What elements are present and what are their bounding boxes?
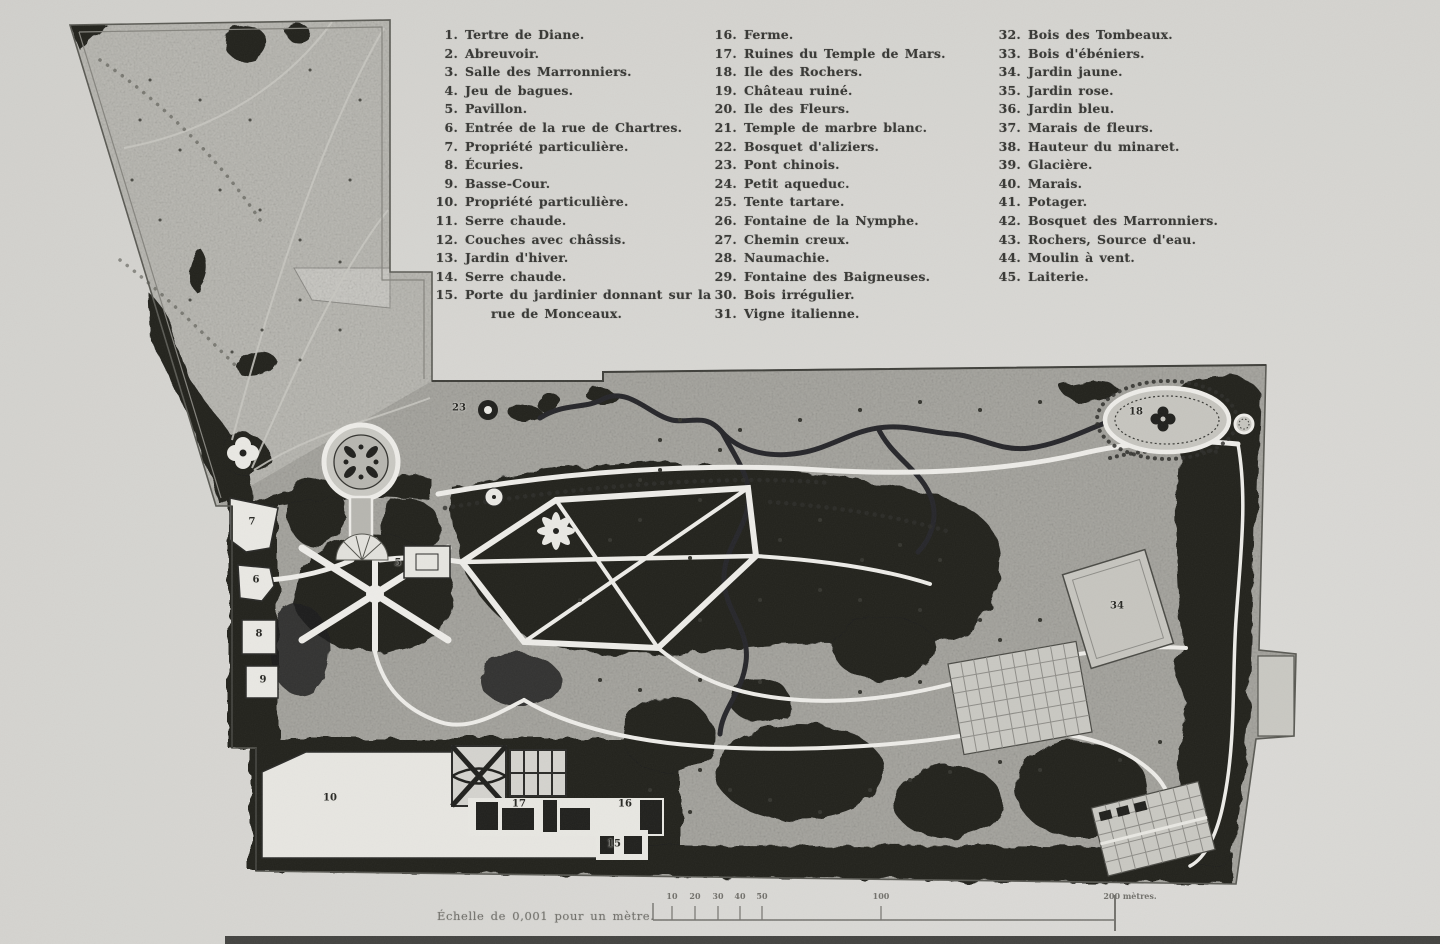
legend-item-label: Moulin à vent.: [1028, 249, 1135, 268]
legend-item: 26. Fontaine de la Nymphe.: [711, 212, 983, 231]
legend-item-label: Pavillon.: [465, 100, 527, 119]
scale-tick-label: 50: [756, 891, 767, 901]
map-number-label: 7: [249, 517, 256, 528]
legend-item: 43. Rochers, Source d'eau.: [995, 231, 1255, 250]
legend-item: 37. Marais de fleurs.: [995, 119, 1255, 138]
legend-item-label: Ferme.: [744, 26, 793, 45]
legend-item-number: 17.: [711, 45, 737, 64]
legend-item: 13. Jardin d'hiver.: [432, 249, 712, 268]
legend-item-number: 35.: [995, 82, 1021, 101]
legend-item-label: Vigne italienne.: [744, 305, 860, 324]
legend-item: 7. Propriété particulière.: [432, 138, 712, 157]
map-number-label: 17: [512, 799, 526, 810]
legend-item-number: 5.: [432, 100, 458, 119]
map-number-label: 34: [1110, 601, 1124, 612]
legend-item-label: Bosquet des Marronniers.: [1028, 212, 1218, 231]
legend-item: 29. Fontaine des Baigneuses.: [711, 268, 983, 287]
legend-item-label: Couches avec châssis.: [465, 231, 626, 250]
legend-item-number: 28.: [711, 249, 737, 268]
legend-item-number: 22.: [711, 138, 737, 157]
legend-item-number: 10.: [432, 193, 458, 212]
legend-item-label: Temple de marbre blanc.: [744, 119, 927, 138]
legend-item: 27. Chemin creux.: [711, 231, 983, 250]
legend-item-label: Bosquet d'aliziers.: [744, 138, 879, 157]
legend-item-label: Basse-Cour.: [465, 175, 550, 194]
legend-item: 4. Jeu de bagues.: [432, 82, 712, 101]
legend-item: 12. Couches avec châssis.: [432, 231, 712, 250]
legend-item-label: Marais de fleurs.: [1028, 119, 1153, 138]
legend-item-label: Propriété particulière.: [465, 193, 629, 212]
legend-item: 25. Tente tartare.: [711, 193, 983, 212]
legend-item-number: 38.: [995, 138, 1021, 157]
legend-item-label: Naumachie.: [744, 249, 830, 268]
legend-item: 22. Bosquet d'aliziers.: [711, 138, 983, 157]
legend-item-number: 12.: [432, 231, 458, 250]
legend-item-label: Chemin creux.: [744, 231, 850, 250]
legend-item-label: Hauteur du minaret.: [1028, 138, 1180, 157]
map-number-label: 8: [256, 629, 263, 640]
legend-item: 34. Jardin jaune.: [995, 63, 1255, 82]
map-number-label: 10: [323, 793, 337, 804]
legend-item-number: 16.: [711, 26, 737, 45]
legend-item-number: 15.: [432, 286, 458, 305]
map-number-label: 18: [1129, 407, 1143, 418]
legend-item: 8. Écuries.: [432, 156, 712, 175]
map-number-label: 16: [618, 799, 632, 810]
legend-item-number: 32.: [995, 26, 1021, 45]
legend-item: 38. Hauteur du minaret.: [995, 138, 1255, 157]
legend-item-number: 9.: [432, 175, 458, 194]
legend-item: 20. Ile des Fleurs.: [711, 100, 983, 119]
legend-item: 30. Bois irrégulier.: [711, 286, 983, 305]
legend-item-label: Ile des Rochers.: [744, 63, 863, 82]
legend-item-number: 45.: [995, 268, 1021, 287]
legend-item: 24. Petit aqueduc.: [711, 175, 983, 194]
legend-item-label: Serre chaude.: [465, 268, 567, 287]
legend-item-number: 14.: [432, 268, 458, 287]
legend-item-number: 3.: [432, 63, 458, 82]
legend-item: 36. Jardin bleu.: [995, 100, 1255, 119]
scale-tick-label: 20: [689, 891, 700, 901]
legend-item: 19. Château ruiné.: [711, 82, 983, 101]
legend-item-label: Propriété particulière.: [465, 138, 629, 157]
legend-item: 14. Serre chaude.: [432, 268, 712, 287]
legend-item-number: 25.: [711, 193, 737, 212]
scanned-page: 1. Tertre de Diane. 2. Abreuvoir. 3. Sal…: [0, 0, 1440, 944]
legend-item-number: 11.: [432, 212, 458, 231]
legend-item-number: 23.: [711, 156, 737, 175]
legend-item-label: Petit aqueduc.: [744, 175, 850, 194]
legend-item-label: Bois d'ébéniers.: [1028, 45, 1145, 64]
legend-item: 23. Pont chinois.: [711, 156, 983, 175]
legend-item: 42. Bosquet des Marronniers.: [995, 212, 1255, 231]
legend-column-3: 32. Bois des Tombeaux. 33. Bois d'ébénie…: [995, 26, 1255, 286]
legend-item: 10. Propriété particulière.: [432, 193, 712, 212]
legend-item-label: Laiterie.: [1028, 268, 1089, 287]
legend-item: 6. Entrée de la rue de Chartres.: [432, 119, 712, 138]
legend-item-number: 13.: [432, 249, 458, 268]
legend-item-number: 43.: [995, 231, 1021, 250]
legend-item: 1. Tertre de Diane.: [432, 26, 712, 45]
legend-item-number: 37.: [995, 119, 1021, 138]
legend-item-label: Ile des Fleurs.: [744, 100, 850, 119]
legend-item-number: 4.: [432, 82, 458, 101]
legend-item-label: Entrée de la rue de Chartres.: [465, 119, 682, 138]
legend-item: 39. Glacière.: [995, 156, 1255, 175]
legend-item-number: 21.: [711, 119, 737, 138]
legend-item-number: 29.: [711, 268, 737, 287]
legend-item-number: 7.: [432, 138, 458, 157]
legend-item: 32. Bois des Tombeaux.: [995, 26, 1255, 45]
legend-item-label: Serre chaude.: [465, 212, 567, 231]
legend-item: 21. Temple de marbre blanc.: [711, 119, 983, 138]
legend-item-number: 41.: [995, 193, 1021, 212]
legend-item-label: Jardin jaune.: [1028, 63, 1123, 82]
legend-item-label: Jardin bleu.: [1028, 100, 1114, 119]
legend-item-label: Pont chinois.: [744, 156, 840, 175]
legend-item-number: 39.: [995, 156, 1021, 175]
legend-item: 28. Naumachie.: [711, 249, 983, 268]
legend-item-label: Porte du jardinier donnant sur la rue de…: [465, 286, 712, 323]
legend-item-number: 33.: [995, 45, 1021, 64]
legend-item-label: Tertre de Diane.: [465, 26, 584, 45]
legend-item-label: Tente tartare.: [744, 193, 845, 212]
legend-item-number: 34.: [995, 63, 1021, 82]
legend-item-number: 2.: [432, 45, 458, 64]
scale-tick-label: 200 mètres.: [1103, 891, 1156, 901]
legend-item-label: Jardin d'hiver.: [465, 249, 568, 268]
legend-item-label: Bois des Tombeaux.: [1028, 26, 1173, 45]
legend-item: 11. Serre chaude.: [432, 212, 712, 231]
legend-item-label: Ruines du Temple de Mars.: [744, 45, 946, 64]
legend-item-number: 31.: [711, 305, 737, 324]
scale-tick-label: 30: [712, 891, 723, 901]
legend-item-label: Marais.: [1028, 175, 1082, 194]
legend-item-label: Bois irrégulier.: [744, 286, 855, 305]
legend-item-label: Rochers, Source d'eau.: [1028, 231, 1196, 250]
legend-item-label: Potager.: [1028, 193, 1087, 212]
legend-item: 35. Jardin rose.: [995, 82, 1255, 101]
legend-item-label: Jeu de bagues.: [465, 82, 573, 101]
legend-item-number: 44.: [995, 249, 1021, 268]
legend-item: 17. Ruines du Temple de Mars.: [711, 45, 983, 64]
legend-item-label: Salle des Marronniers.: [465, 63, 632, 82]
legend-item-number: 40.: [995, 175, 1021, 194]
map-number-label: 15: [607, 839, 621, 850]
legend-item-number: 8.: [432, 156, 458, 175]
legend-item: 16. Ferme.: [711, 26, 983, 45]
legend-item: 9. Basse-Cour.: [432, 175, 712, 194]
legend-item: 33. Bois d'ébéniers.: [995, 45, 1255, 64]
legend-item: 5. Pavillon.: [432, 100, 712, 119]
legend-item-label: Fontaine des Baigneuses.: [744, 268, 930, 287]
legend-item-number: 36.: [995, 100, 1021, 119]
legend-item-number: 26.: [711, 212, 737, 231]
map-number-label: 6: [253, 575, 260, 586]
legend-item-number: 42.: [995, 212, 1021, 231]
legend-column-1: 1. Tertre de Diane. 2. Abreuvoir. 3. Sal…: [432, 26, 712, 324]
legend-item-number: 20.: [711, 100, 737, 119]
legend-item: 41. Potager.: [995, 193, 1255, 212]
legend-item-label: Glacière.: [1028, 156, 1093, 175]
legend-item: 40. Marais.: [995, 175, 1255, 194]
scale-tick-label: 100: [873, 891, 890, 901]
legend-item-number: 18.: [711, 63, 737, 82]
legend-item-number: 24.: [711, 175, 737, 194]
map-number-label: 5: [395, 558, 402, 569]
scale-tick-label: 10: [666, 891, 677, 901]
legend-item: 45. Laiterie.: [995, 268, 1255, 287]
legend-item-number: 19.: [711, 82, 737, 101]
legend-item-label: Fontaine de la Nymphe.: [744, 212, 919, 231]
legend-item-number: 6.: [432, 119, 458, 138]
legend-item: 15. Porte du jardinier donnant sur la ru…: [432, 286, 712, 323]
legend-item: 2. Abreuvoir.: [432, 45, 712, 64]
map-number-label: 9: [260, 675, 267, 686]
legend-column-2: 16. Ferme. 17. Ruines du Temple de Mars.…: [711, 26, 983, 324]
legend-item-label: Écuries.: [465, 156, 524, 175]
legend-item: 3. Salle des Marronniers.: [432, 63, 712, 82]
legend-item-number: 1.: [432, 26, 458, 45]
legend-item: 31. Vigne italienne.: [711, 305, 983, 324]
legend-item-number: 30.: [711, 286, 737, 305]
map-number-label: 23: [452, 403, 466, 414]
legend-item: 44. Moulin à vent.: [995, 249, 1255, 268]
scale-tick-label: 40: [734, 891, 745, 901]
legend-item-number: 27.: [711, 231, 737, 250]
scale-caption: Échelle de 0,001 pour un mètre.: [437, 909, 654, 923]
legend-item: 18. Ile des Rochers.: [711, 63, 983, 82]
legend-item-label: Abreuvoir.: [465, 45, 539, 64]
legend-item-label: Château ruiné.: [744, 82, 853, 101]
legend-item-label: Jardin rose.: [1028, 82, 1114, 101]
